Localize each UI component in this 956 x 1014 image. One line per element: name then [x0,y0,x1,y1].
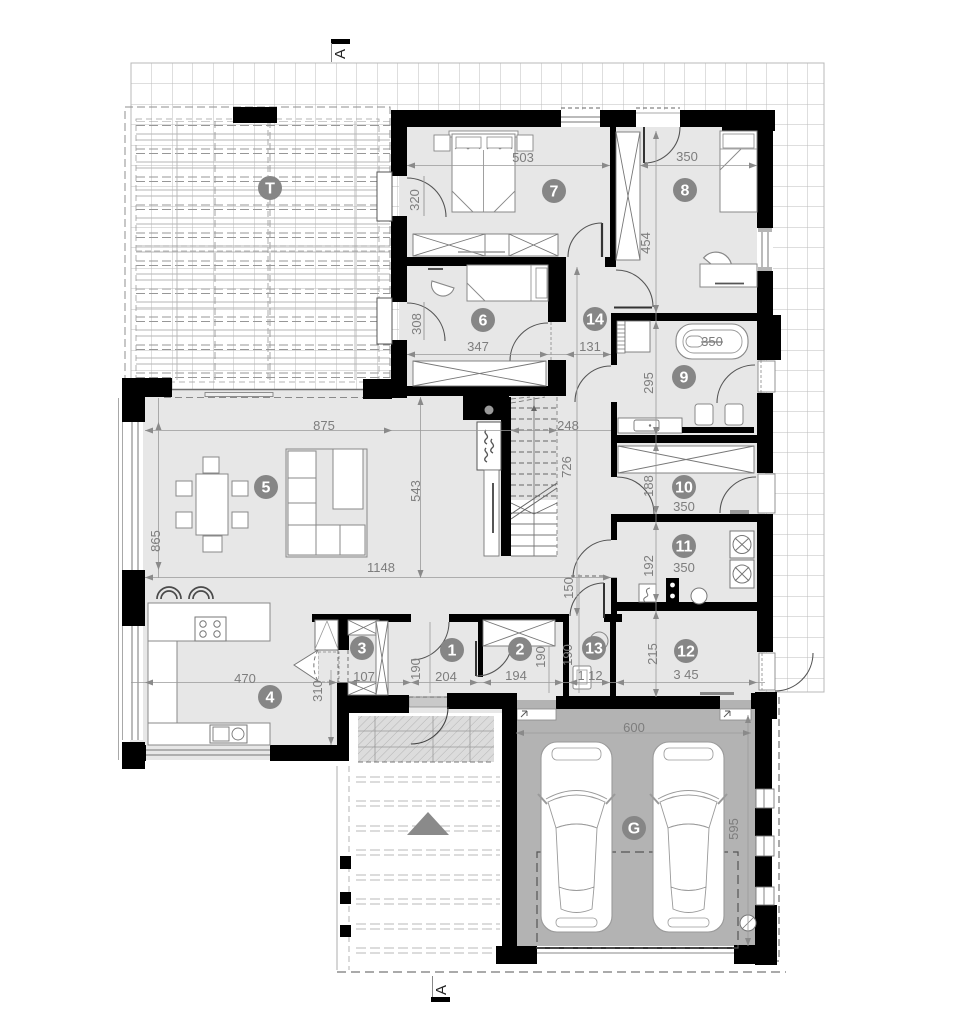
svg-text:308: 308 [409,313,424,335]
svg-text:190: 190 [408,658,423,680]
svg-text:215: 215 [645,643,660,665]
svg-text:350: 350 [676,149,698,164]
svg-text:10: 10 [675,480,693,497]
svg-text:107: 107 [353,669,375,684]
svg-text:320: 320 [407,189,422,211]
svg-text:350: 350 [673,560,695,575]
svg-text:194: 194 [505,668,527,683]
svg-text:503: 503 [512,150,534,165]
svg-text:470: 470 [234,671,256,686]
svg-text:190: 190 [533,646,548,668]
svg-text:5: 5 [262,480,271,497]
svg-text:192: 192 [641,555,656,577]
svg-text:150: 150 [561,577,576,599]
svg-text:9: 9 [680,370,689,387]
svg-text:3: 3 [358,641,367,658]
svg-text:543: 543 [408,480,423,502]
svg-text:6: 6 [479,313,488,330]
svg-text:A: A [433,985,450,995]
svg-text:G: G [628,821,640,838]
svg-text:190: 190 [560,644,575,666]
svg-text:865: 865 [148,530,163,552]
svg-text:188: 188 [641,475,656,497]
svg-text:13: 13 [585,641,603,658]
svg-text:204: 204 [435,669,457,684]
svg-text:1 12: 1 12 [577,668,602,683]
svg-text:310: 310 [310,680,325,702]
svg-text:600: 600 [623,720,645,735]
svg-text:7: 7 [550,184,559,201]
svg-text:131: 131 [579,339,601,354]
svg-text:8: 8 [681,183,690,200]
svg-text:11: 11 [676,539,693,556]
svg-text:A: A [332,49,349,59]
svg-text:726: 726 [559,456,574,478]
svg-text:4: 4 [266,690,275,707]
svg-text:875: 875 [313,418,335,433]
svg-text:3 45: 3 45 [673,667,698,682]
svg-text:12: 12 [677,644,695,661]
svg-text:14: 14 [586,312,604,329]
svg-text:347: 347 [467,339,489,354]
svg-text:454: 454 [638,232,653,254]
svg-text:1148: 1148 [367,560,395,575]
svg-text:350: 350 [701,334,723,349]
svg-text:2: 2 [516,642,525,659]
svg-text:248: 248 [557,418,579,433]
svg-text:295: 295 [641,372,656,394]
svg-text:595: 595 [726,818,741,840]
svg-text:T: T [265,181,275,198]
svg-text:1: 1 [448,643,457,660]
svg-text:350: 350 [673,499,695,514]
